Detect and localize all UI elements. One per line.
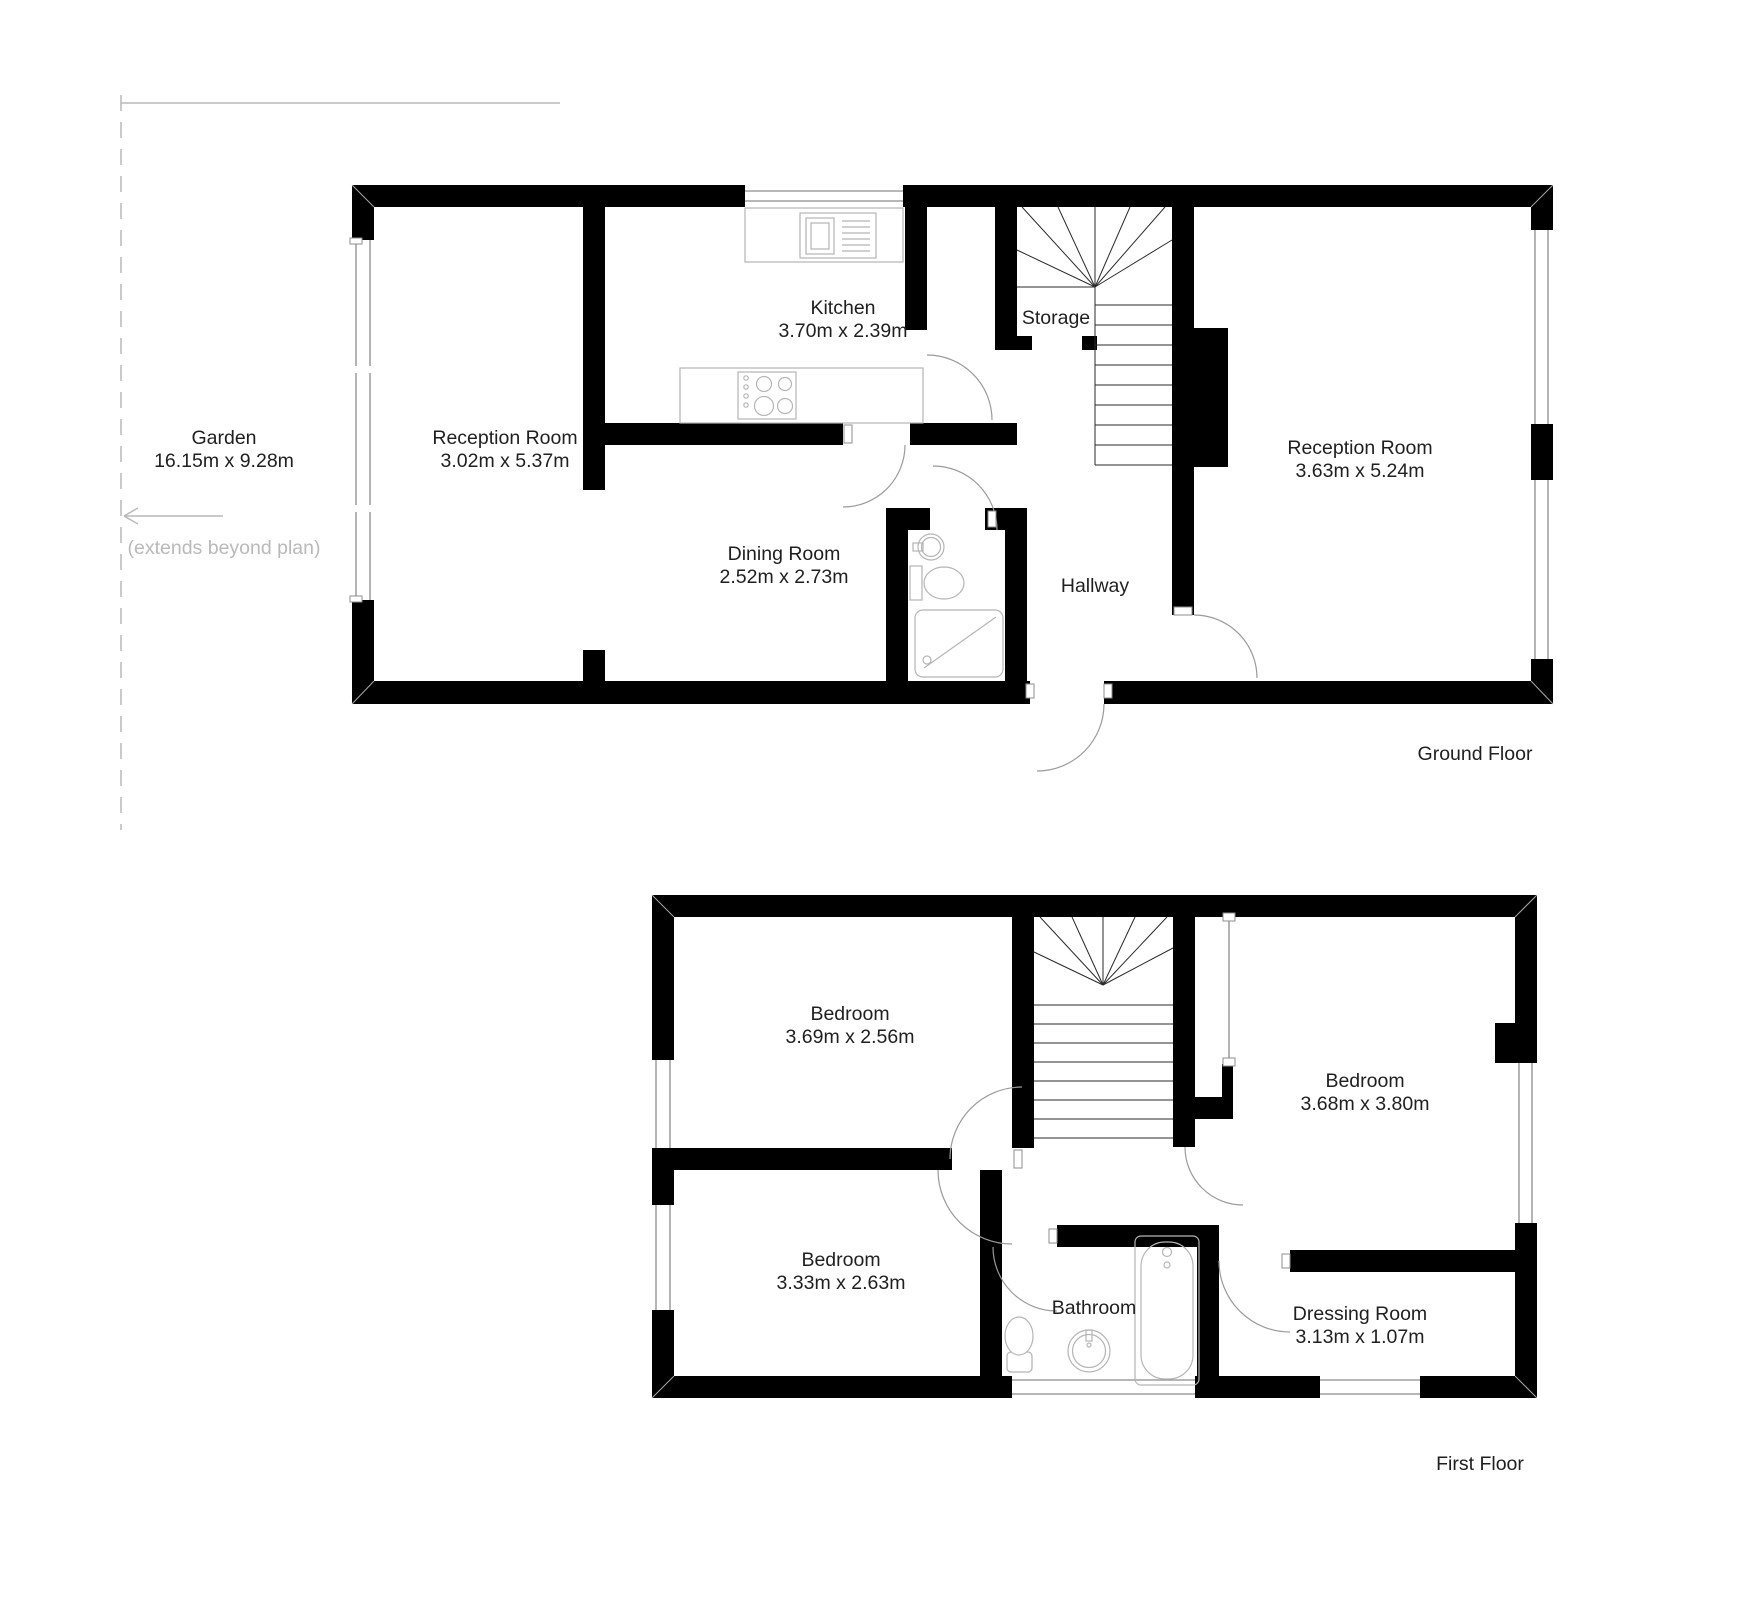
ground-interior-walls <box>583 207 1228 681</box>
first-floor-plan: Bedroom 3.69m x 2.56m Bedroom 3.68m x 3.… <box>652 895 1537 1475</box>
bathroom-toilet <box>1005 1317 1033 1372</box>
reception-right-window-upper <box>1535 230 1548 424</box>
kitchen-hall-door-arc <box>927 355 992 420</box>
bedroom-top-left-dims: 3.69m x 2.56m <box>786 1026 915 1048</box>
ground-floor-title: Ground Floor <box>1418 743 1533 765</box>
dressing-room-door-arc <box>1219 1261 1290 1332</box>
bedroom-top-left-label: Bedroom <box>810 1003 889 1025</box>
reception-right-dims: 3.63m x 5.24m <box>1296 460 1425 482</box>
floorplan-drawing: Garden 16.15m x 9.28m (extends beyond pl… <box>0 0 1753 1605</box>
reception-left-glazing <box>350 238 372 602</box>
wc-toilet <box>910 566 964 600</box>
reception-right-label: Reception Room <box>1287 437 1432 459</box>
hallway-label: Hallway <box>1061 575 1130 597</box>
bathroom-label: Bathroom <box>1052 1297 1137 1319</box>
bathroom-window <box>1012 1380 1195 1394</box>
dressing-room-window <box>1320 1380 1420 1394</box>
ground-floor-plan: Reception Room 3.02m x 5.37m Kitchen 3.7… <box>350 185 1553 771</box>
shower-tray <box>915 610 1003 677</box>
shower-room-fixtures <box>910 534 1003 677</box>
kitchen-dims: 3.70m x 2.39m <box>779 320 908 342</box>
reception-left-dims: 3.02m x 5.37m <box>441 450 570 472</box>
hob-unit <box>680 368 923 423</box>
first-staircase <box>1034 917 1173 1138</box>
garden-dims: 16.15m x 9.28m <box>154 450 294 472</box>
bedroom-right-dims: 3.68m x 3.80m <box>1301 1093 1430 1115</box>
floorplan-page: Garden 16.15m x 9.28m (extends beyond pl… <box>0 0 1753 1605</box>
kitchen-label: Kitchen <box>810 297 875 319</box>
sink-unit <box>745 208 903 262</box>
garden-extends-arrow-icon <box>124 508 223 524</box>
bedroom-bottom-left-window <box>656 1205 670 1310</box>
kitchen-window <box>745 191 903 201</box>
dining-label: Dining Room <box>728 543 841 565</box>
dressing-room-dims: 3.13m x 1.07m <box>1296 1326 1425 1348</box>
bedroom-right-window <box>1519 1063 1532 1223</box>
bedroom-top-left-door-arc <box>950 1087 1022 1159</box>
bedroom-bottom-left-dims: 3.33m x 2.63m <box>777 1272 906 1294</box>
bathtub <box>1135 1236 1199 1385</box>
dining-dims: 2.52m x 2.73m <box>720 566 849 588</box>
garden-note: (extends beyond plan) <box>128 537 321 559</box>
first-floor-title: First Floor <box>1436 1453 1524 1475</box>
dressing-room-label: Dressing Room <box>1293 1303 1427 1325</box>
bedroom-right-label: Bedroom <box>1325 1070 1404 1092</box>
bathroom-door-arc <box>993 1247 1057 1311</box>
chimney-breast <box>1194 328 1228 467</box>
reception-right-window-lower <box>1535 480 1548 659</box>
dining-door-arc <box>843 445 905 507</box>
garden-label: Garden <box>191 427 256 449</box>
wc-basin <box>913 534 944 560</box>
reception-left-label: Reception Room <box>432 427 577 449</box>
ground-staircase <box>1017 207 1172 465</box>
landing-cupboard <box>1223 913 1235 1066</box>
front-door-arc <box>1037 704 1104 771</box>
reception-right-door-arc <box>1194 615 1257 678</box>
storage-label: Storage <box>1022 307 1090 329</box>
bedroom-bottom-left-label: Bedroom <box>801 1249 880 1271</box>
kitchen-fixtures <box>680 208 923 423</box>
bedroom-right-door-arc <box>1185 1147 1243 1205</box>
bathroom-basin <box>1068 1330 1110 1372</box>
